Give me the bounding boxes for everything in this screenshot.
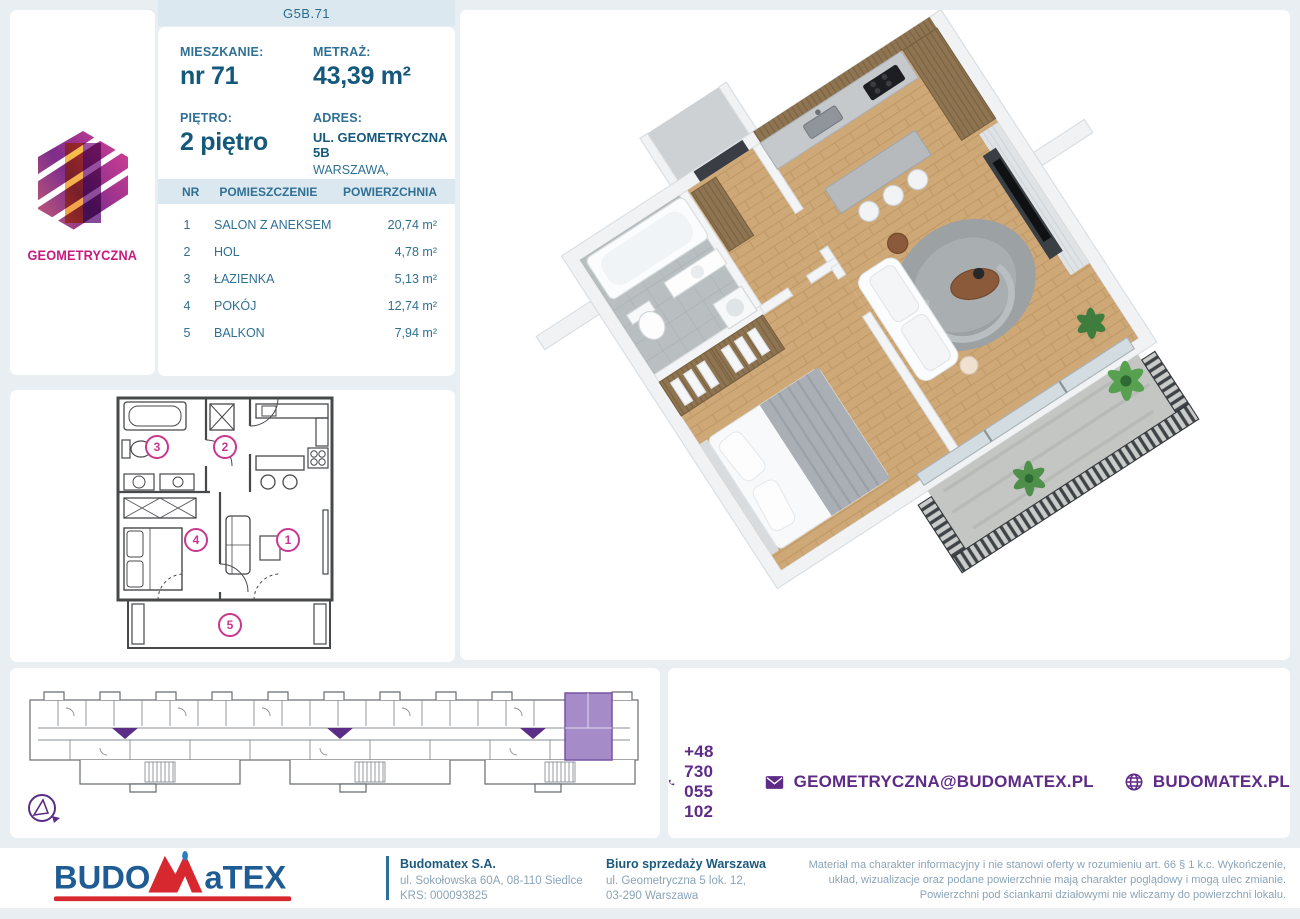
company-info: Budomatex S.A. ul. Sokołowska 60A, 08-11… (400, 857, 583, 904)
row-area: 20,74 m² (388, 218, 437, 232)
budomatex-logo: BUDO aTEX (52, 850, 322, 906)
address-label: ADRES: (313, 111, 455, 125)
row-nr: 5 (172, 326, 202, 340)
area-value: 43,39 m² (313, 62, 411, 91)
brand-logo: GEOMETRYCZNA (10, 128, 155, 263)
apartment-number: nr 71 (180, 62, 263, 91)
logo-text-atex: aTEX (204, 859, 286, 896)
contact-panel: +48 730 055 102 GEOMETRYCZNA@BUDOMATEX.P… (668, 668, 1290, 838)
company-name: Budomatex S.A. (400, 857, 583, 872)
apartment-label: MIESZKANIE: (180, 45, 263, 59)
company-krs: KRS: 000093825 (400, 889, 583, 904)
floor-plan-2d-panel: 3 2 4 1 5 (10, 390, 455, 662)
row-name: BALKON (214, 326, 265, 340)
geometryczna-hexagon-icon (33, 128, 133, 238)
footer-divider (386, 856, 389, 900)
phone-icon (668, 773, 675, 792)
email-icon (764, 773, 785, 792)
company-address: ul. Sokołowska 60A, 08-110 Siedlce (400, 874, 583, 889)
row-name: ŁAZIENKA (214, 272, 274, 286)
brand-panel: GEOMETRYCZNA (10, 10, 155, 375)
floor-plan-2d: 3 2 4 1 5 (10, 390, 455, 662)
area-label: METRAŻ: (313, 45, 411, 59)
compass-icon (29, 795, 60, 823)
room-badge-1: 1 (285, 533, 292, 547)
visualization-3d-panel (460, 10, 1290, 660)
logo-m-icon (148, 854, 202, 893)
row-area: 4,78 m² (395, 245, 437, 259)
row-name: SALON Z ANEKSEM (214, 218, 331, 232)
contact-row: +48 730 055 102 GEOMETRYCZNA@BUDOMATEX.P… (668, 742, 1290, 822)
unit-code: G5B.71 (283, 6, 330, 21)
footer: BUDO aTEX Budomatex S.A. ul. Sokołowska … (0, 848, 1300, 908)
address-line1: UL. GEOMETRYCZNA 5B (313, 130, 455, 160)
row-nr: 3 (172, 272, 202, 286)
office-address1: ul. Geometryczna 5 lok. 12, (606, 874, 766, 889)
building-plan (10, 668, 660, 838)
table-row: 1 SALON Z ANEKSEM 20,74 m² (158, 211, 455, 238)
row-nr: 2 (172, 245, 202, 259)
apartment-info-panel: MIESZKANIE: nr 71 METRAŻ: 43,39 m² PIĘTR… (158, 27, 455, 376)
website-link[interactable]: BUDOMATEX.PL (1124, 772, 1290, 792)
row-nr: 1 (172, 218, 202, 232)
email-link[interactable]: GEOMETRYCZNA@BUDOMATEX.PL (764, 772, 1094, 792)
header-name: POMIESZCZENIE (219, 185, 317, 199)
row-area: 12,74 m² (388, 299, 437, 313)
brand-name: GEOMETRYCZNA (28, 248, 138, 263)
room-badge-5: 5 (227, 618, 234, 632)
highlighted-unit (565, 693, 612, 760)
rooms-table: 1 SALON Z ANEKSEM 20,74 m² 2 HOL 4,78 m²… (158, 211, 455, 346)
row-name: HOL (214, 245, 240, 259)
apartment-3d-render (460, 10, 1290, 660)
row-name: POKÓJ (214, 299, 256, 313)
flyer-page: G5B.71 (0, 0, 1300, 919)
header-nr: NR (182, 185, 199, 199)
room-badge-2: 2 (222, 440, 229, 454)
room-badge-4: 4 (193, 533, 200, 547)
floor-value: 2 piętro (180, 128, 268, 157)
legal-disclaimer: Materiał ma charakter informacyjny i nie… (790, 858, 1286, 903)
room-badge-3: 3 (154, 440, 161, 454)
table-row: 5 BALKON 7,94 m² (158, 319, 455, 346)
row-nr: 4 (172, 299, 202, 313)
header-area: POWIERZCHNIA (343, 185, 437, 199)
logo-text-budo: BUDO (54, 859, 150, 896)
office-name: Biuro sprzedaży Warszawa (606, 857, 766, 872)
phone-link[interactable]: +48 730 055 102 (668, 742, 734, 822)
floor-label: PIĘTRO: (180, 111, 268, 125)
rooms-table-header: NR POMIESZCZENIE POWIERZCHNIA (158, 179, 455, 204)
phone-number: +48 730 055 102 (684, 742, 734, 822)
globe-icon (1124, 772, 1144, 792)
email-address: GEOMETRYCZNA@BUDOMATEX.PL (794, 772, 1094, 792)
building-plan-panel (10, 668, 660, 838)
website-url: BUDOMATEX.PL (1153, 772, 1290, 792)
table-row: 4 POKÓJ 12,74 m² (158, 292, 455, 319)
row-area: 7,94 m² (395, 326, 437, 340)
table-row: 3 ŁAZIENKA 5,13 m² (158, 265, 455, 292)
sales-office-info: Biuro sprzedaży Warszawa ul. Geometryczn… (606, 857, 766, 904)
unit-code-strip: G5B.71 (158, 0, 455, 26)
office-address2: 03-290 Warszawa (606, 889, 766, 904)
table-row: 2 HOL 4,78 m² (158, 238, 455, 265)
row-area: 5,13 m² (395, 272, 437, 286)
